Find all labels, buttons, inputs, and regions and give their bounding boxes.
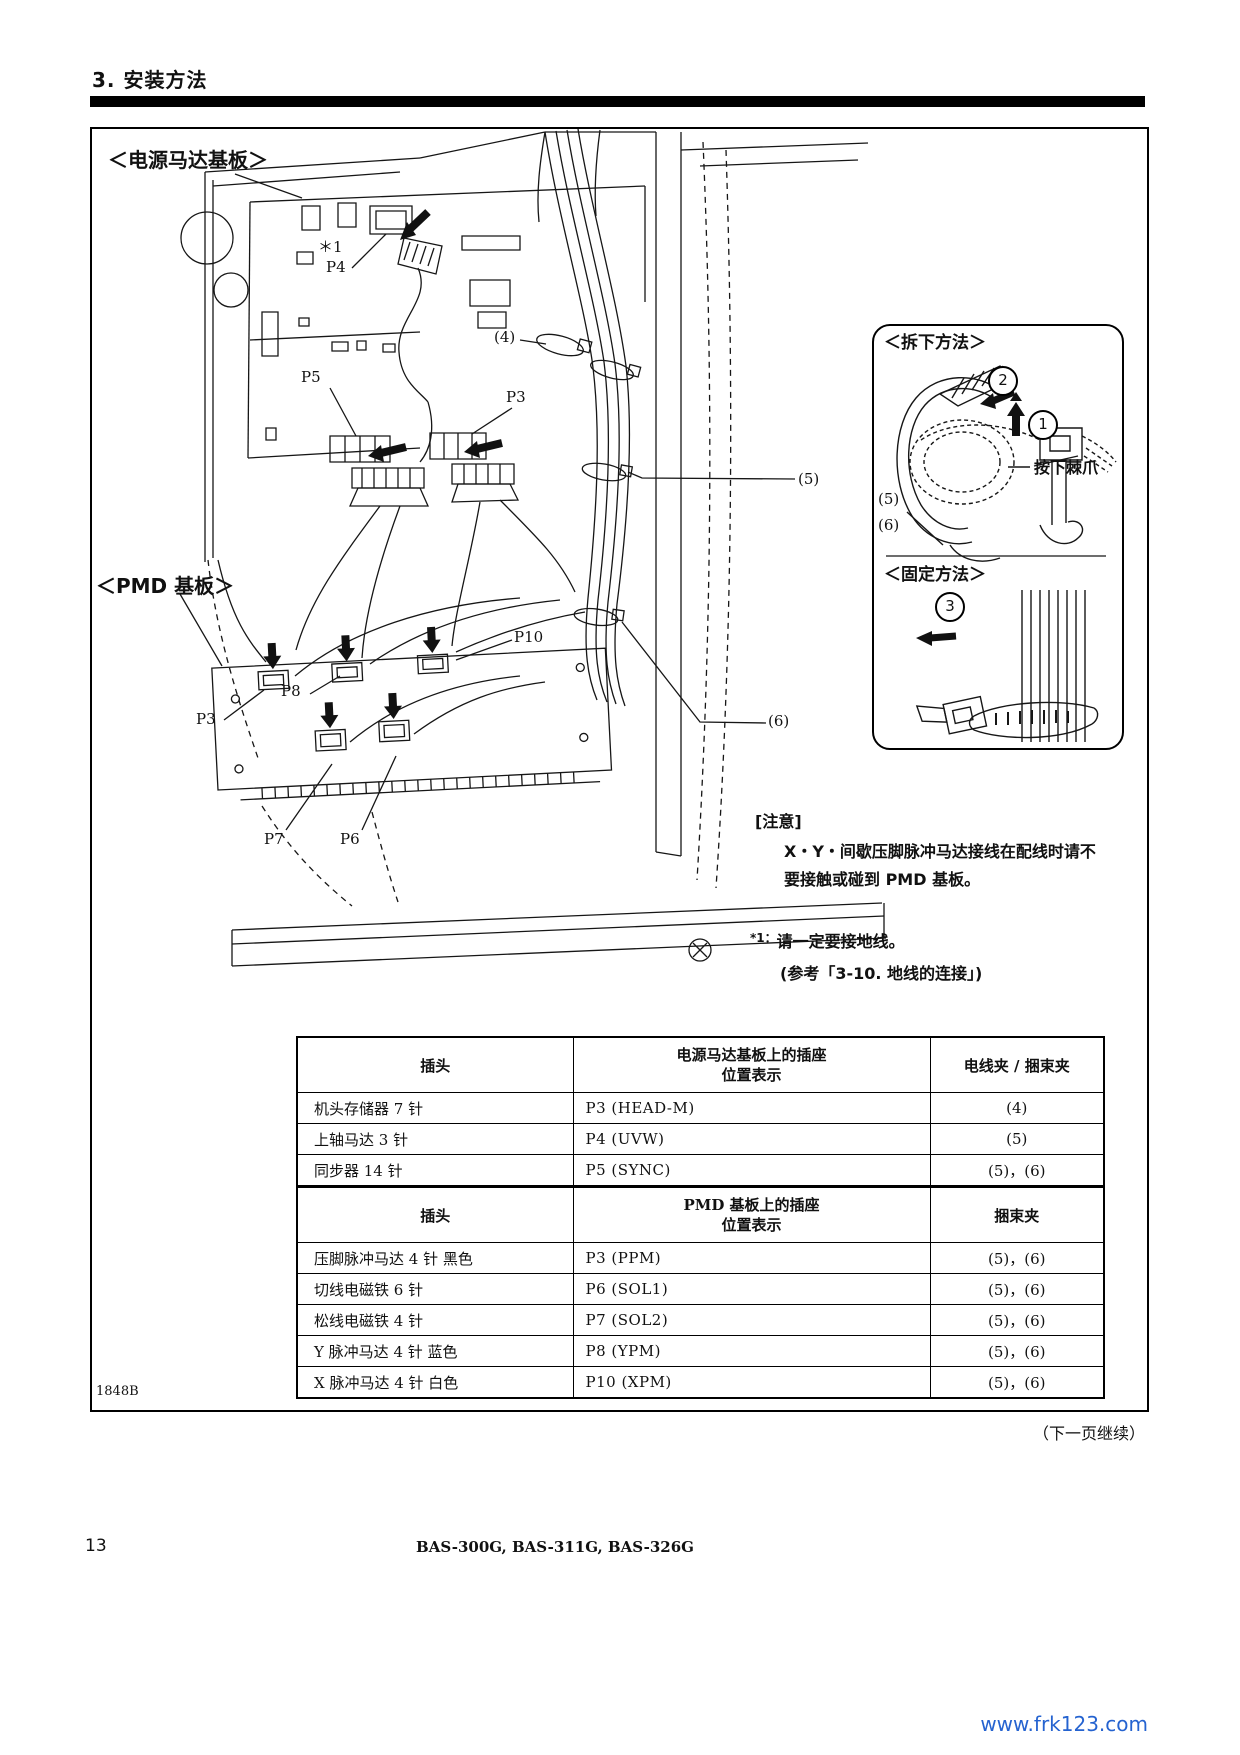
footnote-line: *1：请一定要接地线。 <box>750 928 905 952</box>
cell-clip: (5)，(6) <box>930 1274 1104 1305</box>
footnote-mark: *1： <box>750 931 777 945</box>
cell-clip: (5)，(6) <box>930 1367 1104 1399</box>
caution-line-1: X・Y・间歇压脚脉冲马达接线在配线时请不 <box>784 838 1096 862</box>
caution-title: [注意] <box>755 808 802 832</box>
cell-socket: P3 (HEAD-M) <box>573 1093 930 1124</box>
cell-socket: P7 (SOL2) <box>573 1305 930 1336</box>
cell-plug: 机头存储器 7 针 <box>297 1093 573 1124</box>
board2-label: ＜PMD 基板＞ <box>96 570 234 599</box>
table-header-row-2: 插头 PMD 基板上的插座 位置表示 捆束夹 <box>297 1187 1104 1243</box>
table-row: 压脚脉冲马达 4 针 黑色 P3 (PPM) (5)，(6) <box>297 1243 1104 1274</box>
header-bundle-clip: 捆束夹 <box>930 1187 1104 1243</box>
callout-p5: P5 <box>301 368 321 386</box>
callout-p8: P8 <box>281 682 301 700</box>
table-row: 切线电磁铁 6 针 P6 (SOL1) (5)，(6) <box>297 1274 1104 1305</box>
table-row: 同步器 14 针 P5 (SYNC) (5)，(6) <box>297 1155 1104 1187</box>
board1-label: ＜电源马达基板＞ <box>108 144 268 173</box>
cell-socket: P8 (YPM) <box>573 1336 930 1367</box>
table-row: 上轴马达 3 针 P4 (UVW) (5) <box>297 1124 1104 1155</box>
inset-callout-5: (5) <box>878 490 899 508</box>
header-socket-board1: 电源马达基板上的插座 位置表示 <box>573 1037 930 1093</box>
header-plug: 插头 <box>297 1037 573 1093</box>
footnote-text: 请一定要接地线。 <box>777 932 905 951</box>
cell-clip: (5)，(6) <box>930 1336 1104 1367</box>
callout-6: (6) <box>768 712 789 730</box>
cell-socket: P6 (SOL1) <box>573 1274 930 1305</box>
header-socket-board2: PMD 基板上的插座 位置表示 <box>573 1187 930 1243</box>
cell-plug: 同步器 14 针 <box>297 1155 573 1187</box>
cell-clip: (5)，(6) <box>930 1155 1104 1187</box>
header-socket-line1: 电源马达基板上的插座 <box>574 1045 930 1065</box>
cell-plug: 压脚脉冲马达 4 针 黑色 <box>297 1243 573 1274</box>
page-title: 3. 安装方法 <box>92 64 207 93</box>
callout-p3-top: P3 <box>506 388 526 406</box>
cell-socket: P3 (PPM) <box>573 1243 930 1274</box>
callout-5: (5) <box>798 470 819 488</box>
step-2-badge: 2 <box>988 366 1018 396</box>
page-number: 13 <box>85 1536 107 1556</box>
header-rule <box>90 96 1145 107</box>
cell-plug: 松线电磁铁 4 针 <box>297 1305 573 1336</box>
cell-socket: P10 (XPM) <box>573 1367 930 1399</box>
pawl-label: 按下棘爪 <box>1034 454 1098 478</box>
figure-code: 1848B <box>96 1384 139 1399</box>
inset-callout-6: (6) <box>878 516 899 534</box>
table-row: 松线电磁铁 4 针 P7 (SOL2) (5)，(6) <box>297 1305 1104 1336</box>
callout-p6: P6 <box>340 830 360 848</box>
callout-p3-bottom: P3 <box>196 710 216 728</box>
callout-p7: P7 <box>264 830 284 848</box>
inset-fix-title: ＜固定方法＞ <box>884 560 986 585</box>
table-header-row: 插头 电源马达基板上的插座 位置表示 电线夹 / 捆束夹 <box>297 1037 1104 1093</box>
table-row: X 脉冲马达 4 针 白色 P10 (XPM) (5)，(6) <box>297 1367 1104 1399</box>
inset-remove-title: ＜拆下方法＞ <box>884 328 986 353</box>
step-1-badge: 1 <box>1028 410 1058 440</box>
cell-clip: (4) <box>930 1093 1104 1124</box>
callout-p4: P4 <box>326 258 346 276</box>
footnote-ref: (参考「3-10. 地线的连接」) <box>780 960 982 984</box>
header-socket-line2: 位置表示 <box>574 1065 930 1085</box>
footer-models: BAS-300G, BAS-311G, BAS-326G <box>340 1538 770 1556</box>
cell-socket: P4 (UVW) <box>573 1124 930 1155</box>
continued-note: （下一页继续） <box>1033 1420 1145 1444</box>
callout-p10: P10 <box>514 628 543 646</box>
cell-clip: (5)，(6) <box>930 1305 1104 1336</box>
step-3-badge: 3 <box>935 592 965 622</box>
caution-line-2: 要接触或碰到 PMD 基板。 <box>784 866 980 890</box>
connector-table: 插头 电源马达基板上的插座 位置表示 电线夹 / 捆束夹 机头存储器 7 针 P… <box>296 1036 1105 1399</box>
header-socket2-line2: 位置表示 <box>574 1215 930 1235</box>
header-socket2-line1: PMD 基板上的插座 <box>574 1195 930 1215</box>
table-row: Y 脉冲马达 4 针 蓝色 P8 (YPM) (5)，(6) <box>297 1336 1104 1367</box>
header-clips: 电线夹 / 捆束夹 <box>930 1037 1104 1093</box>
cell-clip: (5)，(6) <box>930 1243 1104 1274</box>
cell-plug: 切线电磁铁 6 针 <box>297 1274 573 1305</box>
cell-plug: X 脉冲马达 4 针 白色 <box>297 1367 573 1399</box>
cell-plug: Y 脉冲马达 4 针 蓝色 <box>297 1336 573 1367</box>
watermark-link[interactable]: www.frk123.com <box>848 1712 1148 1736</box>
cell-socket: P5 (SYNC) <box>573 1155 930 1187</box>
callout-star1: ＊1 <box>318 236 343 257</box>
cell-plug: 上轴马达 3 针 <box>297 1124 573 1155</box>
manual-page: 3. 安装方法 <box>0 0 1240 1755</box>
header-plug-2: 插头 <box>297 1187 573 1243</box>
cell-clip: (5) <box>930 1124 1104 1155</box>
table-row: 机头存储器 7 针 P3 (HEAD-M) (4) <box>297 1093 1104 1124</box>
callout-4: (4) <box>494 328 515 346</box>
